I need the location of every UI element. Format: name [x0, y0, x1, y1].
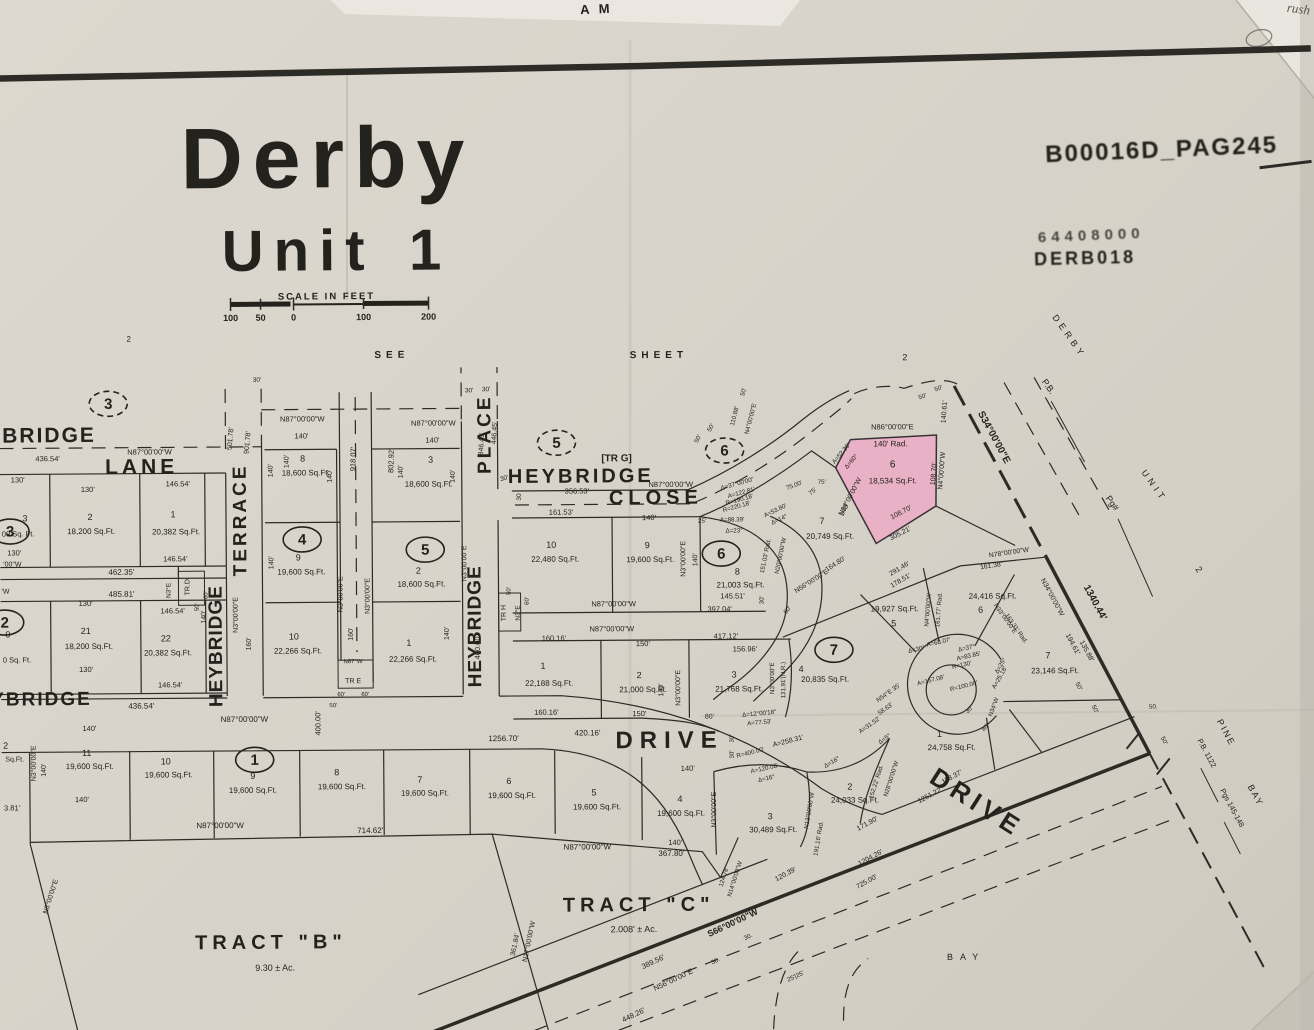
- map-label: 5: [591, 787, 596, 797]
- map-label: 50': [1074, 681, 1084, 691]
- map-label: 2: [1193, 565, 1204, 575]
- corner-note: rush: [1286, 0, 1311, 18]
- map-label: 30': [482, 386, 491, 393]
- map-label: SHEET: [630, 350, 688, 361]
- map-label: N87°00'00"W: [221, 715, 269, 724]
- map-title: Derby: [180, 109, 474, 207]
- map-label: N78°00'00"W: [988, 546, 1030, 560]
- map-label: PINE: [1215, 717, 1238, 747]
- map-label: 1: [406, 638, 411, 648]
- map-label: 146.54': [163, 554, 188, 563]
- map-label: 25'|25': [786, 970, 805, 984]
- map-label: 22,480 Sq.Ft.: [531, 555, 579, 564]
- map-label: A=31.52': [858, 715, 882, 735]
- map-label: 1: [170, 509, 175, 519]
- map-label: 1: [541, 661, 546, 671]
- map-label: 918.07': [348, 446, 358, 471]
- map-label: 1340.44': [1081, 583, 1109, 622]
- map-subtitle-number: 1: [409, 217, 452, 282]
- map-label: 30': [729, 734, 736, 742]
- map-label: 20,749 Sq.Ft.: [806, 532, 854, 541]
- map-label: 75': [808, 486, 819, 497]
- map-label: 2: [3, 741, 8, 751]
- map-label: Pgs 145-148: [1218, 787, 1246, 829]
- map-label: 194.61': [1064, 633, 1081, 656]
- map-label: 140': [201, 611, 208, 624]
- map-label: N3°00'00"E: [769, 662, 776, 694]
- map-label: 161.53': [549, 508, 574, 517]
- map-label: 130': [79, 599, 94, 608]
- map-label: 22,266 Sq.Ft.: [274, 646, 322, 655]
- map-label: 140': [284, 455, 291, 468]
- map-label: 140.61': [940, 400, 949, 423]
- stamp-line-1: B00016D_PAG245: [1045, 132, 1279, 169]
- map-label: N87°00'00"W: [196, 821, 244, 830]
- map-label: 2: [87, 512, 92, 522]
- map-label: 1256.70': [488, 734, 519, 743]
- map-label: 140': [82, 724, 97, 733]
- map-label: 140': [268, 464, 275, 477]
- map-label: 75.00': [785, 479, 803, 491]
- map-label: 19,600 Sq.Ft.: [657, 809, 705, 818]
- map-label: N87°00'00"W: [563, 842, 611, 851]
- map-label: A=25.18': [991, 666, 1009, 691]
- map-label: Δ=23°: [726, 527, 744, 534]
- map-label: A=120.08': [750, 762, 779, 775]
- map-label: 6: [506, 776, 511, 786]
- map-label: 140': [41, 764, 48, 777]
- map-label: 50': [195, 603, 201, 611]
- map-label: 140': [294, 431, 309, 440]
- plat-map-page: Derby Unit 1 SCALE IN FEET 100500100200 …: [0, 0, 1314, 1030]
- map-label: 20,835 Sq.Ft.: [801, 675, 849, 684]
- map-label: 6: [890, 459, 896, 470]
- map-label: 30.: [710, 956, 721, 966]
- map-label: Pg#: [1104, 494, 1121, 513]
- map-label: 389.56': [640, 952, 666, 971]
- map-label: UNIT: [1139, 468, 1169, 504]
- map-top-border: [0, 48, 1311, 78]
- map-label: 150': [636, 639, 651, 648]
- map-label: 50': [1159, 736, 1169, 746]
- map-label: Δ=12°00'18": [742, 709, 777, 719]
- map-label: P.B. 1122: [1195, 737, 1218, 769]
- map-label: 130': [7, 548, 22, 557]
- map-label: 30,489 Sq.Ft.: [749, 825, 797, 834]
- map-label: 60': [361, 692, 369, 698]
- map-label: N87°00'00"W: [280, 414, 326, 423]
- map-label: N3°00'00"E: [363, 578, 371, 614]
- scale-tick-label: 100: [356, 312, 371, 322]
- map-label: 21,003 Sq.Ft.: [716, 580, 764, 589]
- map-label: 18,534 Sq.Ft.: [869, 476, 917, 485]
- map-label: '00"W: [3, 561, 22, 568]
- map-label: 9: [250, 771, 255, 781]
- scale-tick-label: 0: [291, 313, 296, 323]
- map-label: 160': [348, 628, 355, 641]
- map-label: Δ=16°: [823, 755, 842, 770]
- map-label: 9: [296, 552, 301, 562]
- scale-tick-labels: 100500100200: [223, 312, 436, 323]
- map-label: 80': [705, 714, 714, 721]
- map-label: N3°00'00"E: [232, 597, 240, 633]
- map-label: R=400.00': [736, 746, 765, 760]
- map-label: 400.00': [473, 634, 482, 659]
- map-label: 145.51': [720, 591, 745, 600]
- map-label: 30: [516, 493, 523, 501]
- map-label: 146.54': [166, 479, 191, 488]
- map-label: 50': [706, 423, 716, 433]
- map-label: P.B.: [1040, 377, 1057, 396]
- map-label: BAY: [947, 952, 985, 962]
- map-label: N3°00'00"E: [30, 745, 38, 781]
- map-label: 163.31' Rad.: [1003, 612, 1029, 645]
- map-label: A=68.07': [926, 637, 951, 649]
- map-label: HEYBRIDGE: [508, 465, 654, 488]
- map-label: 725.00': [855, 874, 878, 891]
- map-label: 19,600 Sq.Ft.: [145, 770, 193, 779]
- map-label: 75': [818, 479, 826, 486]
- block-number: 6: [720, 442, 728, 459]
- map-label: N87°00'00"W: [127, 447, 173, 456]
- stamp-line-2: 64408000: [1038, 225, 1145, 246]
- map-label: 361.84': [510, 933, 521, 957]
- recording-stamps: B00016D_PAG245 64408000 DERB018: [1033, 131, 1312, 269]
- map-label: 0 Sq. Ft.: [3, 655, 31, 664]
- map-label: 140': [75, 795, 90, 804]
- scale-tick-label: 100: [223, 313, 238, 323]
- map-label: 2: [127, 335, 132, 344]
- map-label: 151.03' Rad.: [759, 538, 773, 574]
- map-label: 24,416 Sq.Ft.: [969, 591, 1017, 600]
- map-label: 1: [937, 729, 942, 739]
- map-label: 21: [81, 626, 91, 636]
- map-label: 19,600 Sq.Ft.: [401, 788, 449, 797]
- map-label: 130': [81, 485, 96, 494]
- map-label: 10: [546, 540, 556, 550]
- block-number: 6: [717, 546, 725, 563]
- map-label: 2: [847, 782, 852, 792]
- map-label: N87°00'00"W: [589, 624, 635, 633]
- map-label: 130': [11, 475, 26, 484]
- map-label: 485.81': [109, 590, 136, 599]
- map-label: 60': [782, 605, 793, 616]
- map-label: 25': [698, 518, 706, 525]
- map-label: 19,600 Sq.Ft.: [573, 802, 621, 811]
- map-label: 8: [300, 453, 305, 463]
- map-label: N14°00'00"W: [726, 860, 744, 897]
- map-label: 18,600 Sq.Ft.: [282, 468, 330, 477]
- map-label: HEYBRIDGE: [0, 689, 92, 711]
- map-label: N3°E: [164, 582, 172, 598]
- map-label: N86°00'00"E: [871, 422, 914, 431]
- map-label: 19,600 Sq.Ft.: [626, 555, 674, 564]
- map-label: 436.54': [128, 702, 155, 711]
- map-label: TR E: [345, 678, 361, 685]
- map-label: R=130': [951, 660, 972, 671]
- block-number: 7: [830, 642, 838, 659]
- map-label: N56°00'00"E: [652, 966, 694, 992]
- map-label: CLOSE: [609, 487, 703, 510]
- map-label: 9.30 ± Ac.: [255, 963, 295, 973]
- map-label: 18,200 Sq.Ft.: [65, 642, 113, 651]
- map-label: 714.62': [357, 826, 384, 835]
- map-label: Sq.Ft.: [5, 756, 24, 763]
- map-label: N56°00'00"E: [793, 567, 830, 595]
- map-label: N4°00'00"W: [923, 593, 933, 627]
- plat-map: Derby Unit 1 SCALE IN FEET 100500100200 …: [0, 0, 1314, 1030]
- map-label: 397.04': [707, 604, 732, 613]
- map-label: 50.: [1149, 704, 1158, 711]
- map-label: N87°00'00"W: [648, 480, 694, 489]
- map-label: 3: [768, 811, 773, 821]
- map-label: N13°00'00"W: [803, 792, 816, 830]
- map-label: N87°W: [343, 659, 362, 665]
- map-label: 420.16': [574, 728, 601, 737]
- map-label: N3°E: [514, 605, 522, 621]
- map-label: TR H: [501, 605, 508, 621]
- map-label: SEE: [374, 350, 409, 361]
- map-label: 164.80': [824, 556, 846, 574]
- map-label: 20,382 Sq.Ft.: [152, 527, 200, 536]
- map-label: 3: [22, 513, 27, 523]
- map-label: 124.78': [718, 866, 731, 887]
- map-label: 8: [334, 767, 339, 777]
- map-label: 160': [246, 637, 253, 650]
- map-label: 160.16': [534, 708, 559, 717]
- map-label: N3°00'00"E: [336, 576, 344, 612]
- map-label: N87°00'00"W: [591, 599, 637, 608]
- map-label: 19,600 Sq.Ft.: [277, 567, 325, 576]
- map-label: 60': [204, 591, 210, 599]
- stamp-line-3: DERB018: [1034, 247, 1137, 269]
- map-label: 'W: [2, 589, 10, 596]
- map-label: A=88.39': [720, 516, 744, 523]
- map-label: 0: [5, 630, 10, 640]
- fold-crease: [700, 710, 1314, 716]
- map-label: 417.12': [714, 631, 739, 640]
- map-label: 22,188 Sq.Ft.: [525, 679, 573, 688]
- map-label: 5: [891, 618, 896, 628]
- map-label: 436.54': [35, 454, 60, 463]
- map-label: HEYBRIDGE: [205, 585, 227, 707]
- map-label: HEYBRIDGE: [0, 424, 96, 448]
- map-label: 146.54': [160, 606, 185, 615]
- map-subtitle-unit: Unit: [222, 218, 375, 284]
- map-label: 146.54': [158, 680, 183, 689]
- map-label: 150': [632, 709, 647, 718]
- map-label: BAY: [1246, 783, 1266, 808]
- map-label: 7: [1045, 650, 1050, 660]
- map-label: 462.35': [108, 568, 135, 577]
- map-label: 120.39': [774, 866, 797, 883]
- map-label: TERRACE: [230, 463, 252, 576]
- map-label: 2: [637, 670, 642, 680]
- map-label: 140': [444, 627, 451, 640]
- scale-tick-label: 200: [421, 312, 436, 322]
- map-label: 356.53': [565, 486, 590, 495]
- map-label: 4: [799, 664, 804, 674]
- map-label: 131.91'(N.R.): [780, 662, 787, 699]
- map-label: 140': [658, 683, 665, 696]
- block-number: 3: [104, 396, 112, 413]
- map-label: 00 Sq. Ft.: [2, 529, 35, 538]
- map-label: A=77.53': [747, 718, 772, 727]
- map-label: 10: [161, 756, 171, 766]
- map-label: 60': [525, 597, 531, 605]
- map-label: LANE: [105, 455, 178, 479]
- map-label: 9: [645, 540, 650, 550]
- map-label: DRIVE: [615, 727, 724, 755]
- map-label: 4: [677, 794, 682, 804]
- map-label: 19,600 Sq.Ft.: [318, 782, 366, 791]
- map-label: N87°00'00"W: [411, 418, 457, 427]
- map-label: TRACT "B": [195, 931, 347, 954]
- map-label: 140': [642, 513, 657, 522]
- map-label: 30': [759, 596, 766, 604]
- map-label: 18,600 Sq.Ft.: [405, 479, 453, 488]
- map-label: 20,382 Sq.Ft.: [144, 648, 192, 657]
- map-label: 140': [668, 838, 683, 847]
- title-block: Derby Unit 1 SCALE IN FEET 100500100200: [180, 109, 475, 323]
- map-label: 50': [739, 387, 748, 397]
- map-label: N3°00'00"E: [42, 878, 61, 915]
- map-label: 60': [337, 692, 345, 698]
- map-label: Δ=16°: [757, 773, 776, 784]
- block-number: 5: [421, 542, 429, 559]
- map-label: 161.38': [980, 561, 1003, 571]
- map-label: N3°00'00"E: [710, 791, 718, 827]
- map-label: 8: [735, 566, 740, 576]
- map-label: 21,768 Sq.Ft.: [715, 684, 763, 693]
- map-label: TRACT "C": [563, 894, 715, 917]
- map-label: 2: [416, 566, 421, 576]
- map-label: N3°00'00"E: [674, 670, 682, 706]
- map-label: A M: [580, 1, 613, 17]
- map-label: 901.78': [243, 431, 252, 454]
- map-label: N3°00'00"E: [679, 541, 687, 577]
- map-label: 140': [692, 553, 699, 566]
- map-label: HEYBRIDGE: [464, 565, 486, 687]
- map-label: 6: [978, 605, 983, 615]
- map-label: PLACE: [474, 394, 496, 474]
- block-number: 5: [552, 435, 560, 452]
- map-label: 50': [329, 703, 337, 709]
- map-label: 7: [820, 516, 825, 526]
- map-label: 50': [918, 392, 928, 401]
- scale-caption: SCALE IN FEET: [278, 291, 375, 303]
- map-label: R=100.00': [949, 680, 978, 694]
- map-label: 140': [425, 436, 440, 445]
- map-label: 50': [693, 434, 703, 444]
- map-label: N3°00'00"E: [460, 545, 468, 581]
- map-label: 367.80': [658, 849, 685, 858]
- map-label: 19,927 Sq.Ft.: [871, 604, 919, 613]
- map-label: N4°00'00"W: [936, 451, 947, 490]
- map-label: DERBY: [1050, 313, 1088, 360]
- map-label: 18,200 Sq.Ft.: [67, 527, 115, 536]
- map-label: DRIVE: [925, 761, 1029, 843]
- map-label: 130': [79, 665, 94, 674]
- block-number: 4: [298, 531, 307, 548]
- map-label: 50': [506, 587, 512, 595]
- map-label: 2.008' ± Ac.: [611, 924, 658, 934]
- map-label: 50': [934, 384, 944, 393]
- map-label: 140': [268, 556, 275, 569]
- map-label: N4°00'00"E: [744, 403, 759, 435]
- map-label: 140': [681, 764, 696, 773]
- map-label: 22,266 Sq.Ft.: [389, 655, 437, 664]
- map-label: N28°00'00"W: [883, 760, 901, 797]
- edge-shadow: [1300, 0, 1314, 1030]
- map-label: 23,146 Sq.Ft.: [1031, 666, 1079, 675]
- map-label: 19,600 Sq.Ft.: [229, 786, 277, 795]
- map-label: 191.16' Rad.: [812, 821, 825, 857]
- map-label: N34°W: [987, 697, 1000, 718]
- map-label: 30.: [743, 932, 754, 942]
- map-label: 30': [729, 750, 736, 758]
- map-label: 156.96': [733, 644, 758, 653]
- map-label: 140': [398, 465, 405, 478]
- map-label: 10: [289, 632, 299, 642]
- map-label: 171.90': [856, 816, 879, 833]
- map-label: 140' Rad.: [873, 439, 907, 448]
- map-label: 24,758 Sq.Ft.: [928, 743, 976, 752]
- scale-tick-label: 50: [256, 313, 266, 323]
- map-label: 2: [902, 352, 907, 362]
- paper-edge-sliver: [330, 0, 800, 26]
- map-label: A=258.31': [772, 734, 804, 749]
- map-label: TR.D: [184, 579, 191, 595]
- map-label: 3: [428, 455, 433, 465]
- map-label: 140': [327, 470, 334, 483]
- map-label: 18,600 Sq.Ft.: [397, 579, 445, 588]
- map-label: 3.81': [4, 803, 21, 812]
- map-label: 160.16': [542, 634, 567, 643]
- map-label: 802.92': [386, 448, 396, 473]
- map-label: 30': [253, 377, 262, 384]
- map-label: 3: [732, 669, 737, 679]
- map-label: 11: [82, 748, 91, 758]
- map-label: 30': [465, 387, 474, 394]
- map-label: 19,600 Sq.Ft.: [488, 791, 536, 800]
- map-label: 19,600 Sq.Ft.: [66, 762, 114, 771]
- map-label: 7: [417, 775, 422, 785]
- map-label: 400.00': [313, 711, 322, 736]
- map-label: N54°E 35': [875, 682, 902, 704]
- map-label: 110.88': [729, 406, 741, 427]
- map-label: 22: [161, 633, 171, 643]
- block-number: 1: [250, 752, 258, 769]
- map-label: 140': [450, 470, 457, 483]
- map-label: 161.77' Rad.: [934, 592, 944, 628]
- map-label: [TR G]: [601, 453, 632, 464]
